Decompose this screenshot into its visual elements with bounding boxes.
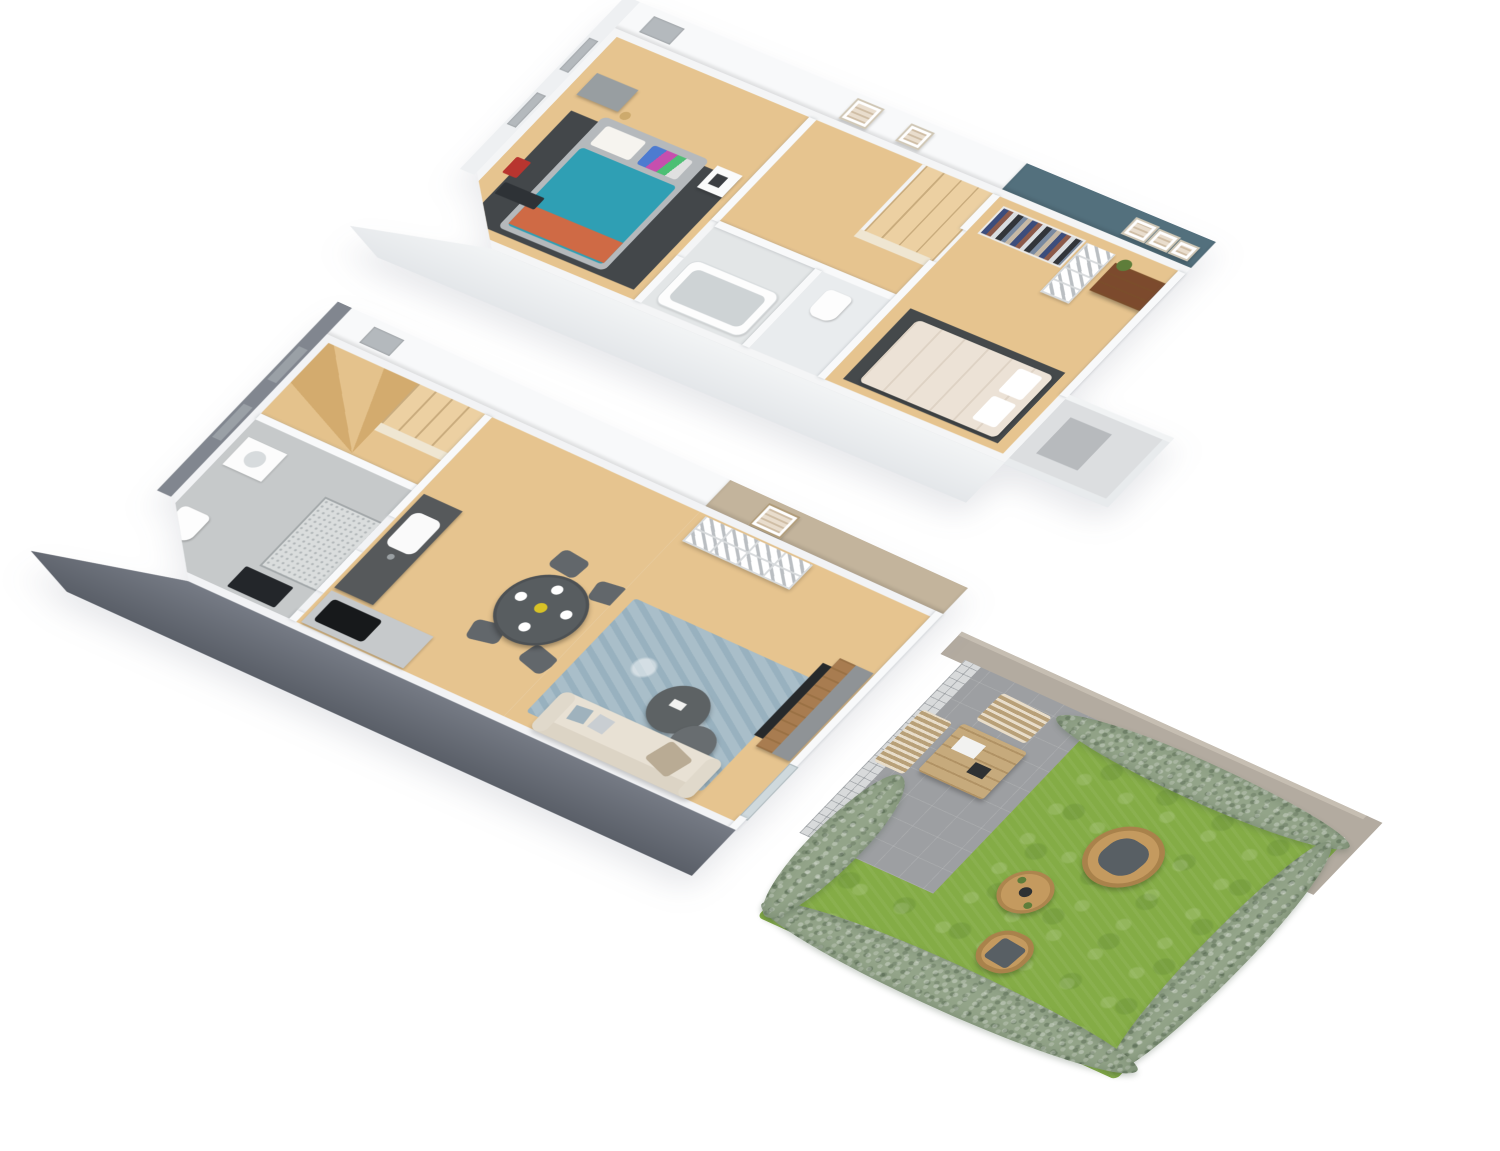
table-item-green bbox=[1016, 876, 1029, 885]
faucet bbox=[385, 553, 396, 561]
coffee-table-item bbox=[669, 699, 688, 711]
nightstand-item bbox=[708, 173, 728, 188]
flowers bbox=[531, 601, 550, 614]
plate bbox=[512, 590, 529, 602]
lounge-chair-cushion bbox=[983, 937, 1027, 969]
window bbox=[639, 16, 685, 45]
plate bbox=[558, 609, 575, 621]
table-item-green bbox=[1022, 901, 1035, 910]
window bbox=[359, 327, 404, 356]
vanity-basin bbox=[239, 448, 270, 470]
plate bbox=[549, 584, 566, 596]
floorplan-scene bbox=[0, 0, 1500, 1151]
egg-chair-cushion bbox=[1090, 833, 1156, 881]
sofa-pillow bbox=[566, 705, 594, 724]
gray-dresser bbox=[576, 73, 638, 112]
table-item bbox=[1016, 885, 1035, 898]
balcony-railing bbox=[1003, 458, 1113, 507]
floor-lamp bbox=[617, 110, 633, 121]
plate bbox=[516, 621, 533, 633]
vanity bbox=[222, 437, 287, 482]
wall-art-frame bbox=[895, 123, 935, 150]
outdoor-tray bbox=[951, 736, 986, 759]
balcony-railing bbox=[1101, 435, 1174, 507]
toilet bbox=[159, 505, 212, 544]
sofa-pillow bbox=[587, 714, 615, 735]
outdoor-item bbox=[966, 762, 992, 779]
balcony-mat bbox=[1036, 417, 1112, 470]
